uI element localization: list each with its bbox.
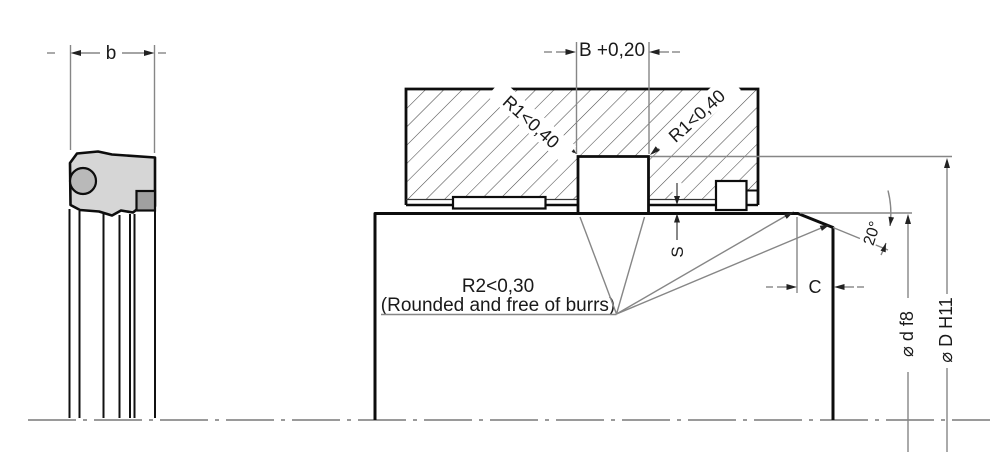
arrowhead <box>820 225 830 231</box>
r2-note: R2<0,30 (Rounded and free of burrs) <box>381 212 830 317</box>
arrowhead <box>566 49 577 55</box>
dimension-rod-diameter: ⌀ d f8 <box>800 213 917 452</box>
backup-ring <box>137 191 156 211</box>
label-B: B +0,20 <box>579 40 645 61</box>
arrowhead <box>834 284 845 290</box>
label-b: b <box>106 43 117 64</box>
arrowhead <box>71 50 82 56</box>
dimension-angle: 20° <box>833 191 894 256</box>
label-c: C <box>809 277 822 297</box>
seal-cross-section <box>70 152 156 419</box>
arrowhead <box>649 49 660 55</box>
label-s: S <box>668 246 687 257</box>
arrowhead <box>944 158 950 168</box>
seal-groove-drawing: b <box>0 0 1000 467</box>
arrowhead <box>787 284 798 290</box>
dimension-c: C <box>766 217 864 297</box>
label-angle: 20° <box>861 219 885 247</box>
corner-notch <box>747 191 759 206</box>
seal-projection-lines <box>70 207 156 418</box>
retaining-tab <box>716 181 747 210</box>
label-r2: R2<0,30 <box>462 276 534 297</box>
arrowhead <box>144 50 155 56</box>
dimension-groove-diameter: ⌀ D H11 <box>650 157 956 453</box>
arrowhead <box>889 217 895 226</box>
arrowhead <box>905 214 911 224</box>
label-rod-diameter: ⌀ d f8 <box>897 311 917 357</box>
label-groove-diameter: ⌀ D H11 <box>936 297 956 363</box>
oring-energizer <box>70 168 96 194</box>
rod-outline <box>375 214 833 421</box>
arrowhead <box>674 196 680 205</box>
technical-drawing-page: b <box>0 0 1000 467</box>
bore-land <box>453 197 546 209</box>
label-r2-note: (Rounded and free of burrs) <box>381 295 615 316</box>
seal-groove <box>578 157 649 214</box>
